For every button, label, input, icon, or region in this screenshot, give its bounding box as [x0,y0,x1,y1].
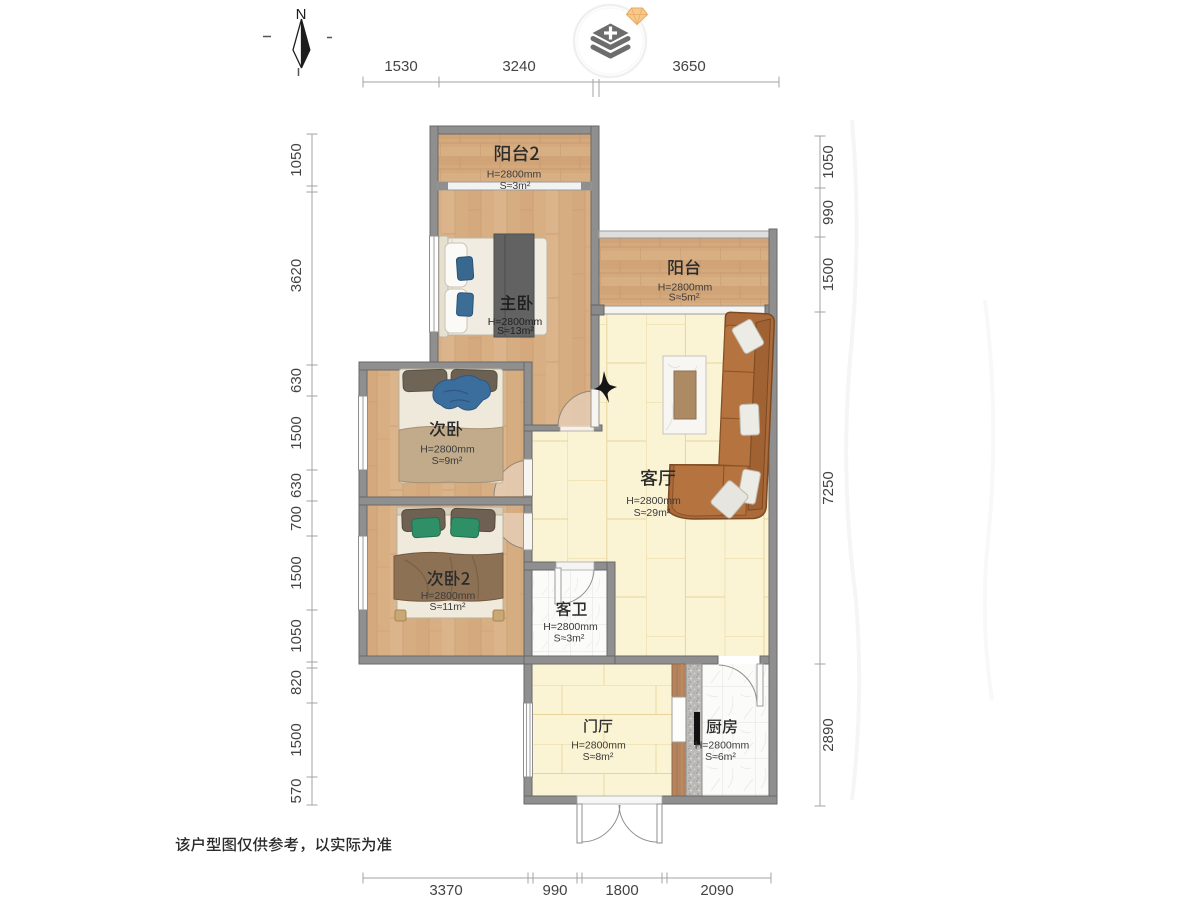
svg-text:1500: 1500 [288,416,305,449]
svg-text:1500: 1500 [288,723,305,756]
svg-text:S≈9m²: S≈9m² [432,455,463,467]
svg-text:S≈13m²: S≈13m² [497,325,534,337]
svg-text:990: 990 [542,882,567,899]
svg-text:S≈3m²: S≈3m² [500,180,531,192]
svg-text:H=2800mm: H=2800mm [420,444,475,456]
svg-text:1500: 1500 [820,258,837,291]
svg-text:1050: 1050 [288,619,305,652]
svg-text:S≈3m²: S≈3m² [554,633,585,645]
svg-text:H=2800mm: H=2800mm [487,169,542,181]
svg-text:H=2800mm: H=2800mm [626,495,681,507]
svg-text:S≈29m²: S≈29m² [634,507,671,519]
svg-text:S≈11m²: S≈11m² [430,601,466,613]
svg-text:7250: 7250 [820,471,837,504]
svg-text:630: 630 [288,368,305,393]
svg-text:1050: 1050 [288,143,305,176]
svg-text:1800: 1800 [605,882,638,899]
svg-text:S≈8m²: S≈8m² [583,751,614,763]
svg-text:570: 570 [288,778,305,803]
svg-text:1050: 1050 [820,145,837,178]
svg-text:S≈5m²: S≈5m² [669,292,700,304]
svg-text:700: 700 [288,506,305,531]
svg-text:820: 820 [288,670,305,695]
svg-text:3370: 3370 [429,882,462,899]
svg-text:H=2800mm: H=2800mm [571,740,626,752]
svg-text:2090: 2090 [700,882,733,899]
svg-text:1500: 1500 [288,556,305,589]
svg-text:990: 990 [820,200,837,225]
svg-text:3240: 3240 [502,58,535,75]
svg-text:3620: 3620 [288,259,305,292]
svg-text:1530: 1530 [384,58,417,75]
svg-text:H=2800mm: H=2800mm [695,740,750,752]
svg-text:630: 630 [288,473,305,498]
svg-text:3650: 3650 [672,58,705,75]
svg-text:S≈6m²: S≈6m² [705,751,736,763]
svg-text:2890: 2890 [820,718,837,751]
svg-text:H=2800mm: H=2800mm [543,621,598,633]
